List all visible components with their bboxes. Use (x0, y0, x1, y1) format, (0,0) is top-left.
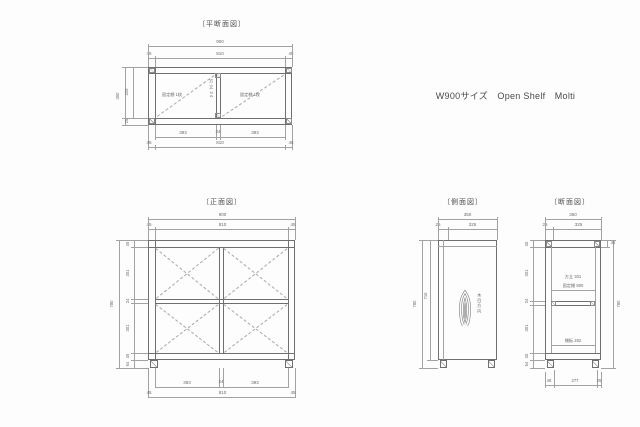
dim-label: 780 (615, 296, 623, 312)
hatch-mark (594, 241, 600, 247)
inner-line (551, 247, 552, 353)
dim-line (613, 240, 614, 368)
ext-line (545, 221, 546, 240)
dim-label: 25 (592, 379, 606, 383)
dim-label: 48 (542, 379, 556, 383)
ext-line (530, 353, 545, 354)
section-view-title: 〔断面図〕 (530, 197, 610, 207)
hatch-mark (551, 301, 556, 306)
ext-line (530, 301, 545, 302)
part-label: 方立 301 (551, 275, 595, 279)
part-label: 棚板 262 (551, 339, 595, 343)
dim-line (545, 219, 601, 220)
inner-line (595, 247, 596, 353)
shelf-line (551, 301, 595, 302)
ext-line (553, 231, 554, 240)
drawing-sheet: 〔平断面図〕 900 45 810 45 固定棚 1枚 固定棚 1枚 方立 24 (0, 0, 640, 427)
part-label: 固定棚 800 (551, 284, 595, 288)
ext-line (601, 221, 602, 240)
leg (547, 360, 554, 368)
shelf-line (551, 290, 595, 291)
inner-line (545, 353, 601, 354)
ext-line (530, 247, 545, 248)
hatch-mark (546, 241, 552, 247)
shelf-line (551, 345, 595, 346)
section-view: 〔断面図〕 350 25 325 方立 301 固定棚 800 棚板 262 (0, 0, 640, 427)
ext-line (530, 368, 545, 369)
dim-label: 301 (523, 265, 531, 281)
ext-line (601, 368, 616, 369)
ext-line (530, 305, 545, 306)
shelf-line (551, 305, 595, 306)
ext-line (530, 360, 545, 361)
ext-line (601, 247, 610, 248)
leg (592, 360, 599, 368)
dim-label: 277 (557, 379, 593, 383)
dim-label: 350 (547, 213, 599, 218)
dim-line (545, 385, 601, 386)
dim-label: 45 (608, 241, 618, 245)
dim-label: 325 (556, 223, 601, 228)
dim-label: 45 (523, 236, 531, 252)
dim-label: 64 (523, 356, 531, 372)
dim-label: 301 (523, 320, 531, 336)
dim-label: 24 (523, 293, 531, 309)
dim-line (533, 240, 534, 368)
inner-line (545, 247, 601, 248)
hatch-mark (590, 301, 595, 306)
ext-line (530, 240, 545, 241)
